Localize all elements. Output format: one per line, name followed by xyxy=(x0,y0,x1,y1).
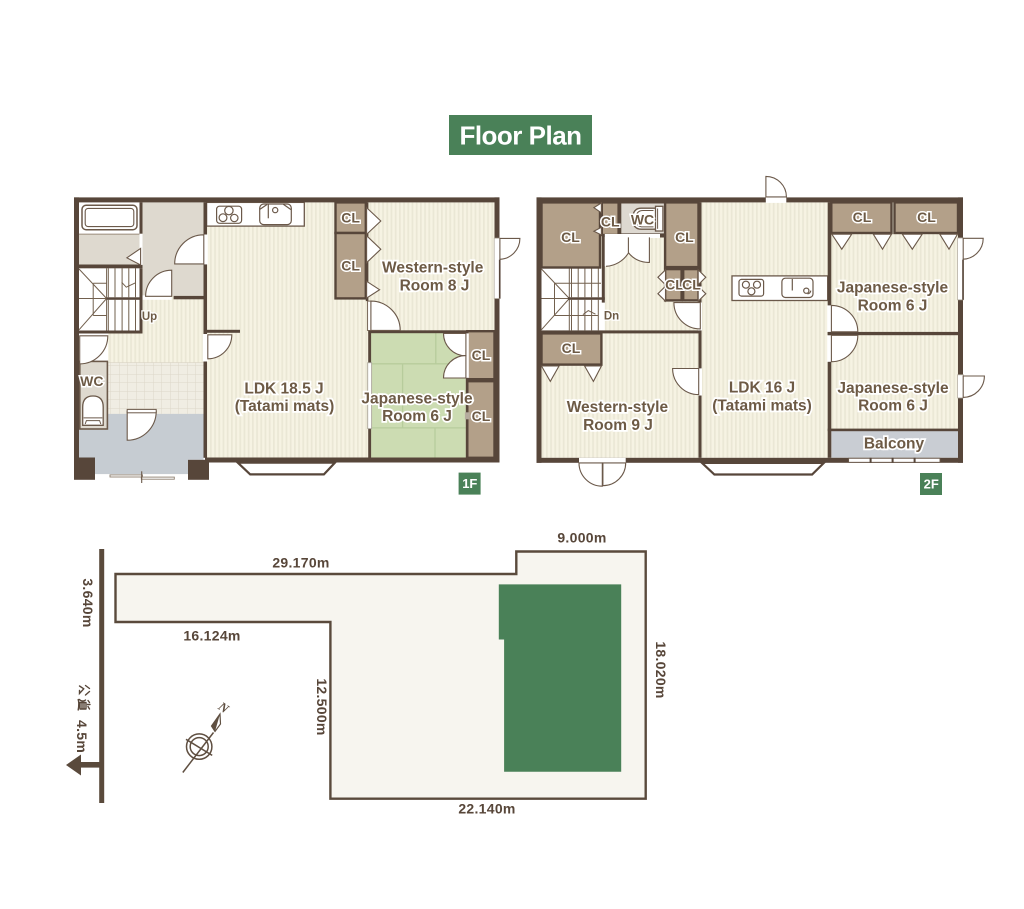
svg-text:3.640m: 3.640m xyxy=(80,578,96,627)
svg-text:CL: CL xyxy=(917,209,936,225)
svg-text:Japanese-style: Japanese-style xyxy=(837,380,949,397)
svg-text:Western-style: Western-style xyxy=(382,260,484,277)
svg-text:(Tatami mats): (Tatami mats) xyxy=(235,398,335,415)
svg-text:CL: CL xyxy=(341,210,360,226)
svg-text:16.124m: 16.124m xyxy=(183,628,240,644)
svg-text:29.170m: 29.170m xyxy=(272,555,329,571)
svg-text:CL: CL xyxy=(341,258,360,274)
svg-text:Balcony: Balcony xyxy=(864,435,925,452)
svg-text:2F: 2F xyxy=(924,477,939,492)
svg-text:12.500m: 12.500m xyxy=(314,678,330,735)
svg-text:CL: CL xyxy=(472,347,491,363)
svg-text:4.5m: 4.5m xyxy=(74,720,90,753)
svg-text:CL: CL xyxy=(682,277,701,293)
svg-text:Room 6 J: Room 6 J xyxy=(858,398,928,415)
svg-text:1F: 1F xyxy=(462,476,477,491)
svg-text:Room 8 J: Room 8 J xyxy=(400,278,470,295)
svg-text:(Tatami mats): (Tatami mats) xyxy=(712,397,812,414)
svg-text:Floor Plan: Floor Plan xyxy=(459,121,581,151)
svg-text:Japanese-style: Japanese-style xyxy=(837,279,949,296)
svg-text:CL: CL xyxy=(853,209,872,225)
svg-text:LDK 16 J: LDK 16 J xyxy=(729,380,795,397)
svg-text:LDK 18.5 J: LDK 18.5 J xyxy=(244,380,323,397)
svg-text:CL: CL xyxy=(561,229,580,245)
svg-text:CL: CL xyxy=(472,408,491,424)
svg-text:CL: CL xyxy=(675,229,694,245)
svg-text:CL: CL xyxy=(601,214,620,230)
svg-text:CL: CL xyxy=(562,340,581,356)
svg-text:9.000m: 9.000m xyxy=(557,530,606,546)
svg-text:Room 6 J: Room 6 J xyxy=(382,408,452,425)
svg-text:Western-style: Western-style xyxy=(567,399,669,416)
svg-text:WC: WC xyxy=(631,212,654,228)
svg-text:Dn: Dn xyxy=(604,311,619,323)
svg-text:18.020m: 18.020m xyxy=(653,641,669,698)
svg-text:Room 9 J: Room 9 J xyxy=(583,417,653,434)
svg-text:22.140m: 22.140m xyxy=(458,801,515,817)
svg-text:WC: WC xyxy=(80,373,103,389)
svg-text:Room 6 J: Room 6 J xyxy=(858,297,928,314)
svg-text:Up: Up xyxy=(142,311,157,323)
svg-text:Japanese-style: Japanese-style xyxy=(361,390,473,407)
